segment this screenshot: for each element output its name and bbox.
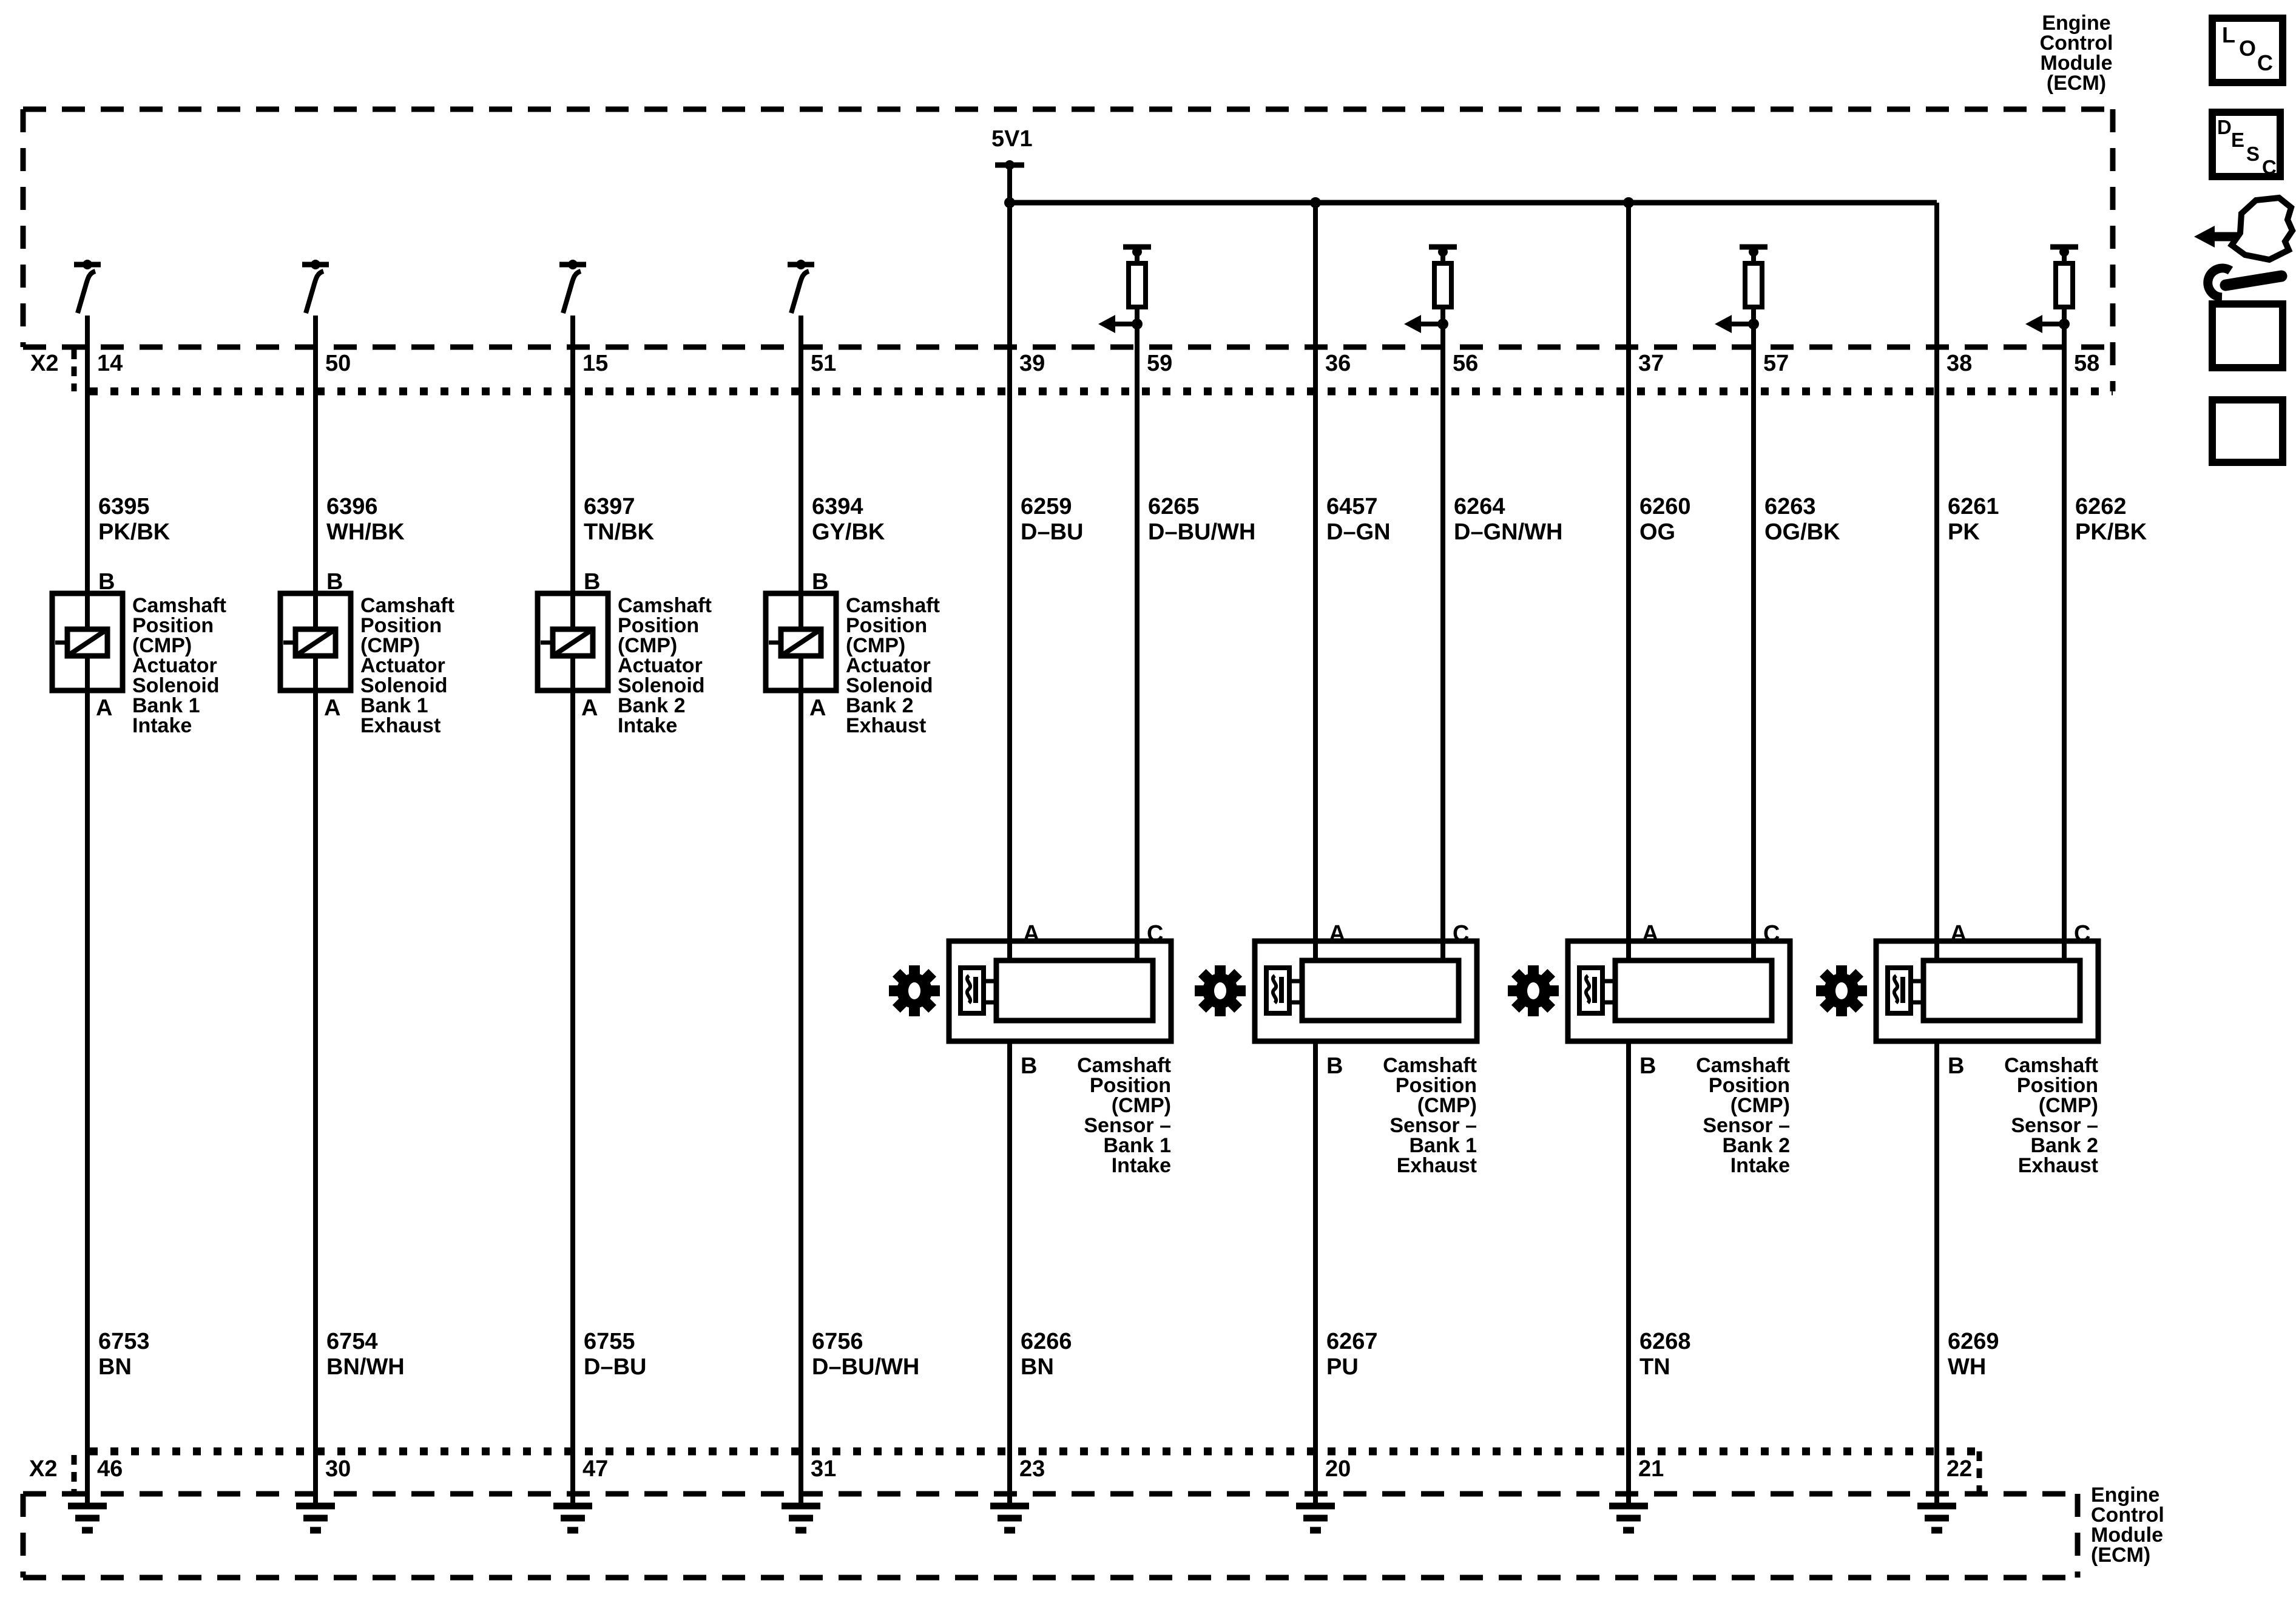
desc-button[interactable]: D E S C bbox=[2209, 109, 2284, 180]
wire-label-6269: 6269WH bbox=[1948, 1329, 1999, 1380]
wire-id: 6754 bbox=[326, 1329, 378, 1354]
solenoid-1-pin-bottom: A bbox=[96, 695, 112, 721]
wire-id: 6259 bbox=[1021, 494, 1072, 519]
wire-color: WH bbox=[1948, 1354, 1986, 1380]
solenoid-4-name: Camshaft Position (CMP) Actuator Solenoi… bbox=[846, 596, 940, 736]
wire-color: BN/WH bbox=[326, 1354, 405, 1380]
loc-button[interactable]: L O C bbox=[2209, 15, 2286, 86]
solenoid-4-pin-top: B bbox=[812, 569, 828, 595]
pin-bottom-5: 23 bbox=[1019, 1456, 1045, 1482]
pin-bottom-3: 47 bbox=[582, 1456, 608, 1482]
gear-icon-4 bbox=[1816, 965, 1867, 1016]
wire-color: TN/BK bbox=[584, 519, 654, 545]
ecm-top-label: Engine Control Module (ECM) bbox=[2034, 13, 2119, 93]
solenoid-1-name: Camshaft Position (CMP) Actuator Solenoi… bbox=[132, 596, 226, 736]
wire-label-6265: 6265D–BU/WH bbox=[1148, 494, 1255, 545]
pullup-resistor-2 bbox=[1404, 247, 1457, 960]
gear-icon-3 bbox=[1508, 965, 1559, 1016]
wire-id: 6264 bbox=[1454, 494, 1505, 519]
wire-label-6754: 6754BN/WH bbox=[326, 1329, 405, 1380]
solenoid-3-name: Camshaft Position (CMP) Actuator Solenoi… bbox=[618, 596, 712, 736]
desc-letter-c: C bbox=[2262, 157, 2277, 177]
wire-id: 6262 bbox=[2075, 494, 2127, 519]
wire-color: WH/BK bbox=[326, 519, 405, 545]
wire-id: 6269 bbox=[1948, 1329, 1999, 1354]
driver-switch-1 bbox=[74, 260, 101, 1506]
sensor-3-name: Camshaft Position (CMP) Sensor – Bank 2 … bbox=[1580, 1056, 1790, 1176]
pin-top-6: 59 bbox=[1147, 351, 1172, 376]
wire-color: PK bbox=[1948, 519, 1980, 545]
desc-letter-s: S bbox=[2246, 144, 2260, 164]
5v-reference-bus bbox=[995, 160, 1937, 208]
solenoid-2-pin-bottom: A bbox=[324, 695, 340, 721]
wire-id: 6397 bbox=[584, 494, 635, 519]
pin-bottom-7: 21 bbox=[1638, 1456, 1664, 1482]
wire-color: OG bbox=[1639, 519, 1675, 545]
pin-top-5: 39 bbox=[1019, 351, 1045, 376]
previous-page-button[interactable] bbox=[2209, 396, 2286, 466]
sensor-1-pin-c: C bbox=[1147, 921, 1163, 947]
wire-id: 6260 bbox=[1639, 494, 1691, 519]
connector-bottom-name: X2 bbox=[29, 1456, 57, 1482]
wire-id: 6395 bbox=[98, 494, 150, 519]
driver-switch-3 bbox=[559, 260, 586, 1506]
solenoid-3-pin-top: B bbox=[584, 569, 600, 595]
pin-top-8: 56 bbox=[1453, 351, 1478, 376]
gear-icon-2 bbox=[1195, 965, 1246, 1016]
connector-x2-top bbox=[74, 349, 2113, 391]
pin-bottom-4: 31 bbox=[811, 1456, 836, 1482]
pin-top-12: 58 bbox=[2074, 351, 2099, 376]
wire-color: BN bbox=[1021, 1354, 1054, 1380]
wire-label-6395: 6395PK/BK bbox=[98, 494, 170, 545]
sensor-1-pin-a: A bbox=[1023, 921, 1039, 947]
sensor-1-name: Camshaft Position (CMP) Sensor – Bank 1 … bbox=[961, 1056, 1171, 1176]
wire-label-6262: 6262PK/BK bbox=[2075, 494, 2147, 545]
solenoid-2-pin-top: B bbox=[326, 569, 343, 595]
wire-id: 6261 bbox=[1948, 494, 1999, 519]
wire-label-6753: 6753BN bbox=[98, 1329, 150, 1380]
pin-top-3: 15 bbox=[582, 351, 608, 376]
wiring-diagram-page: Engine Control Module (ECM) Engine Contr… bbox=[0, 0, 2296, 1617]
sensor-2-pin-a: A bbox=[1329, 921, 1345, 947]
wire-id: 6266 bbox=[1021, 1329, 1072, 1354]
sensor-3-pin-c: C bbox=[1763, 921, 1780, 947]
wire-color: PK/BK bbox=[2075, 519, 2147, 545]
loc-letter-c: C bbox=[2257, 52, 2273, 74]
sensor-4-pin-a: A bbox=[1950, 921, 1967, 947]
wire-color: D–GN/WH bbox=[1454, 519, 1562, 545]
wire-label-6394: 6394GY/BK bbox=[812, 494, 885, 545]
wire-id: 6755 bbox=[584, 1329, 635, 1354]
wire-color: D–BU bbox=[584, 1354, 646, 1380]
wire-color: BN bbox=[98, 1354, 132, 1380]
wire-label-6755: 6755D–BU bbox=[584, 1329, 646, 1380]
wire-id: 6396 bbox=[326, 494, 378, 519]
wire-id: 6263 bbox=[1764, 494, 1816, 519]
desc-letter-d: D bbox=[2217, 117, 2232, 137]
wire-label-6259: 6259D–BU bbox=[1021, 494, 1083, 545]
wire-id: 6457 bbox=[1326, 494, 1378, 519]
loc-letter-l: L bbox=[2222, 24, 2235, 46]
ground-symbols bbox=[68, 1506, 1956, 1530]
solenoid-2-name: Camshaft Position (CMP) Actuator Solenoi… bbox=[360, 596, 454, 736]
sensor-3-pin-a: A bbox=[1642, 921, 1658, 947]
wire-label-6397: 6397TN/BK bbox=[584, 494, 654, 545]
sensor-4-name: Camshaft Position (CMP) Sensor – Bank 2 … bbox=[1888, 1056, 2098, 1176]
sensor-2-name: Camshaft Position (CMP) Sensor – Bank 1 … bbox=[1267, 1056, 1477, 1176]
pin-top-9: 37 bbox=[1638, 351, 1664, 376]
cmp-sensor-2 bbox=[1255, 941, 1477, 1506]
wire-id: 6756 bbox=[812, 1329, 863, 1354]
solenoid-3-pin-bottom: A bbox=[581, 695, 598, 721]
pin-bottom-2: 30 bbox=[325, 1456, 351, 1482]
pin-bottom-1: 46 bbox=[97, 1456, 123, 1482]
wire-color: PU bbox=[1326, 1354, 1359, 1380]
wire-color: D–BU/WH bbox=[1148, 519, 1255, 545]
pin-top-2: 50 bbox=[325, 351, 351, 376]
wire-label-6261: 6261PK bbox=[1948, 494, 1999, 545]
wire-id: 6753 bbox=[98, 1329, 150, 1354]
wire-color: TN bbox=[1639, 1354, 1670, 1380]
wire-color: OG/BK bbox=[1764, 519, 1840, 545]
wire-label-6263: 6263OG/BK bbox=[1764, 494, 1840, 545]
wire-label-6396: 6396WH/BK bbox=[326, 494, 405, 545]
ecm-bottom-label: Engine Control Module (ECM) bbox=[2091, 1485, 2164, 1565]
solenoid-1-pin-top: B bbox=[98, 569, 115, 595]
cmp-sensor-4 bbox=[1876, 941, 2098, 1506]
wire-label-6267: 6267PU bbox=[1326, 1329, 1378, 1380]
loc-letter-o: O bbox=[2239, 38, 2256, 59]
sensor-4-pin-c: C bbox=[2074, 921, 2090, 947]
wire-label-6264: 6264D–GN/WH bbox=[1454, 494, 1562, 545]
sensor-2-pin-c: C bbox=[1453, 921, 1469, 947]
next-page-button[interactable] bbox=[2209, 300, 2286, 371]
cmp-sensor-3 bbox=[1568, 941, 1790, 1506]
driver-switch-4 bbox=[788, 260, 814, 1506]
desc-letter-e: E bbox=[2231, 130, 2244, 150]
pullup-resistor-4 bbox=[2025, 247, 2078, 960]
wire-color: GY/BK bbox=[812, 519, 885, 545]
ecm-top-boundary bbox=[23, 109, 2113, 391]
wire-color: D–BU/WH bbox=[812, 1354, 919, 1380]
pullup-resistor-1 bbox=[1098, 247, 1151, 960]
wire-id: 6268 bbox=[1639, 1329, 1691, 1354]
pin-top-7: 36 bbox=[1325, 351, 1351, 376]
solenoid-4-pin-bottom: A bbox=[809, 695, 826, 721]
wire-label-6756: 6756D–BU/WH bbox=[812, 1329, 919, 1380]
gear-icon-1 bbox=[889, 965, 940, 1016]
driver-switch-2 bbox=[302, 260, 329, 1506]
pin-bottom-8: 22 bbox=[1947, 1456, 1972, 1482]
wire-id: 6265 bbox=[1148, 494, 1200, 519]
pullup-resistor-3 bbox=[1715, 247, 1768, 960]
wire-id: 6394 bbox=[812, 494, 863, 519]
wire-color: PK/BK bbox=[98, 519, 170, 545]
wire-label-6266: 6266BN bbox=[1021, 1329, 1072, 1380]
pin-top-10: 57 bbox=[1763, 351, 1789, 376]
pin-bottom-6: 20 bbox=[1325, 1456, 1351, 1482]
cmp-sensor-1 bbox=[949, 941, 1171, 1506]
power-reference-label: 5V1 bbox=[991, 126, 1033, 152]
wire-label-6457: 6457D–GN bbox=[1326, 494, 1391, 545]
wire-color: D–GN bbox=[1326, 519, 1391, 545]
wire-id: 6267 bbox=[1326, 1329, 1378, 1354]
wire-label-6268: 6268TN bbox=[1639, 1329, 1691, 1380]
pin-top-1: 14 bbox=[97, 351, 123, 376]
connector-top-name: X2 bbox=[30, 351, 58, 376]
wire-label-6260: 6260OG bbox=[1639, 494, 1691, 545]
wire-color: D–BU bbox=[1021, 519, 1083, 545]
sensor-feed-wires bbox=[1010, 203, 1937, 960]
pin-top-11: 38 bbox=[1947, 351, 1972, 376]
repair-hand-wrench-icon[interactable] bbox=[2194, 198, 2292, 297]
pin-top-4: 51 bbox=[811, 351, 836, 376]
